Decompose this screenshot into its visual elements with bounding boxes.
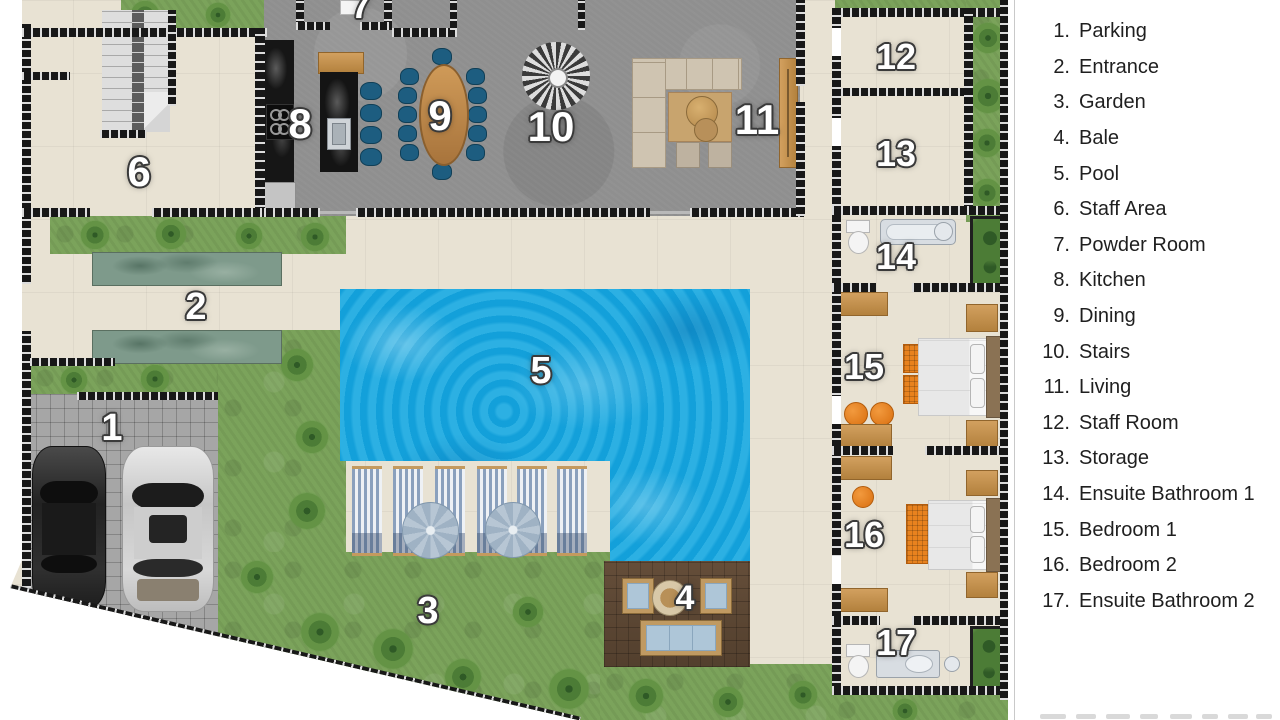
desk xyxy=(840,292,888,316)
sink xyxy=(934,222,953,241)
wall xyxy=(22,28,267,37)
legend-item-bedroom-2: 16.Bedroom 2 xyxy=(1032,548,1276,584)
garden-bottom-right xyxy=(832,692,1008,720)
legend-item-entrance: 2.Entrance xyxy=(1032,50,1276,86)
room-marker-kitchen: 8 xyxy=(288,103,311,145)
legend-item-staff-area: 6.Staff Area xyxy=(1032,192,1276,228)
room-marker-garden: 3 xyxy=(417,592,438,630)
legend-label: Entrance xyxy=(1079,56,1159,79)
wall xyxy=(22,331,31,588)
desk xyxy=(840,456,892,480)
bar-stool xyxy=(360,148,382,166)
orange-rug xyxy=(906,504,930,564)
legend: 1.Parking 2.Entrance 3.Garden 4.Bale 5.P… xyxy=(1032,14,1276,619)
pond xyxy=(92,252,282,286)
wall xyxy=(22,24,31,284)
plant xyxy=(60,366,88,394)
plant xyxy=(300,612,340,652)
desk xyxy=(840,588,888,612)
nightstand xyxy=(966,420,998,448)
legend-item-storage: 13.Storage xyxy=(1032,441,1276,477)
legend-item-dining: 9.Dining xyxy=(1032,299,1276,335)
ottoman xyxy=(708,142,732,168)
plant xyxy=(972,128,1002,158)
room-marker-bedroom-2: 16 xyxy=(844,517,884,553)
nightstand xyxy=(966,304,998,332)
legend-number: 13. xyxy=(1032,447,1070,470)
room-marker-powder-room: 7 xyxy=(351,0,371,24)
coffee-table-lower xyxy=(694,118,718,142)
wall xyxy=(832,283,876,292)
bale-chair xyxy=(700,578,732,614)
sun-lounger xyxy=(352,466,382,556)
dining-chair xyxy=(466,68,485,85)
console-detail xyxy=(787,69,789,157)
watermark xyxy=(1140,714,1158,719)
legend-number: 16. xyxy=(1032,554,1070,577)
pond xyxy=(92,330,282,364)
room-marker-bedroom-1: 15 xyxy=(844,349,884,385)
plant xyxy=(628,678,664,714)
stool xyxy=(870,402,894,426)
legend-item-staff-room: 12.Staff Room xyxy=(1032,406,1276,442)
room-marker-dining: 9 xyxy=(428,95,451,137)
dining-chair xyxy=(468,87,487,104)
door-opening xyxy=(832,28,841,56)
watermark xyxy=(1076,714,1096,719)
legend-number: 15. xyxy=(1032,519,1070,542)
room-marker-ensuite-2: 17 xyxy=(876,625,916,661)
door-opening xyxy=(832,118,841,146)
wall xyxy=(925,446,1008,455)
spiral-center xyxy=(548,68,568,88)
legend-label: Dining xyxy=(1079,305,1136,328)
pillow xyxy=(970,536,985,563)
legend-number: 1. xyxy=(1032,20,1070,43)
legend-label: Bale xyxy=(1079,127,1119,150)
car-roof xyxy=(42,503,96,555)
legend-item-ensuite-2: 17.Ensuite Bathroom 2 xyxy=(1032,584,1276,620)
wall xyxy=(22,72,70,80)
wall xyxy=(964,8,973,214)
legend-label: Bedroom 1 xyxy=(1079,519,1177,542)
legend-label: Staff Area xyxy=(1079,198,1166,221)
wall xyxy=(392,28,457,37)
bale-sofa xyxy=(640,620,722,656)
island-sink xyxy=(327,118,351,150)
desk xyxy=(840,424,892,448)
ottoman xyxy=(676,142,700,168)
legend-label: Ensuite Bathroom 1 xyxy=(1079,483,1255,506)
bale-chair xyxy=(622,578,654,614)
floor-plan: 1 2 3 4 5 6 7 8 9 10 11 12 13 14 15 16 1… xyxy=(0,0,1010,720)
car-windshield xyxy=(40,481,98,505)
legend-number: 5. xyxy=(1032,163,1070,186)
legend-item-pool: 5.Pool xyxy=(1032,156,1276,192)
legend-label: Kitchen xyxy=(1079,269,1146,292)
legend-label: Staff Room xyxy=(1079,412,1179,435)
watermark xyxy=(1106,714,1130,719)
room-marker-staff-area: 6 xyxy=(127,151,150,193)
plant xyxy=(712,686,744,718)
legend-item-kitchen: 8.Kitchen xyxy=(1032,263,1276,299)
room-marker-parking: 1 xyxy=(101,409,122,447)
wall xyxy=(690,208,804,217)
watermark xyxy=(1256,714,1272,719)
legend-item-powder-room: 7.Powder Room xyxy=(1032,228,1276,264)
dining-chair xyxy=(400,68,419,85)
legend-number: 10. xyxy=(1032,341,1070,364)
watermark xyxy=(1170,714,1192,719)
wall xyxy=(77,392,218,400)
bar-stool xyxy=(360,82,382,100)
dining-chair xyxy=(466,144,485,161)
plant xyxy=(140,364,170,394)
room-marker-ensuite-1: 14 xyxy=(876,239,916,275)
legend-label: Parking xyxy=(1079,20,1147,43)
umbrella xyxy=(402,502,459,559)
wall xyxy=(450,0,457,30)
legend-label: Powder Room xyxy=(1079,234,1206,257)
wall xyxy=(255,28,265,216)
legend-label: Storage xyxy=(1079,447,1149,470)
wall xyxy=(912,283,1008,292)
spiral-staircase xyxy=(522,42,590,110)
nightstand xyxy=(966,470,998,496)
toilet-bowl xyxy=(848,231,869,254)
plant xyxy=(205,2,231,28)
plant xyxy=(155,218,187,250)
plant xyxy=(240,560,274,594)
door-opening xyxy=(832,556,841,584)
wall xyxy=(152,208,264,217)
wall xyxy=(1000,0,1008,700)
wall xyxy=(796,0,805,86)
legend-number: 14. xyxy=(1032,483,1070,506)
door-opening xyxy=(832,396,841,424)
wall xyxy=(832,616,880,625)
plant xyxy=(288,492,326,530)
legend-item-bale: 4.Bale xyxy=(1032,121,1276,157)
car-silver xyxy=(122,446,214,612)
wall xyxy=(22,208,90,217)
wall xyxy=(832,446,893,455)
legend-item-garden: 3.Garden xyxy=(1032,85,1276,121)
room-marker-staff-room: 12 xyxy=(876,39,916,75)
kitchen-appliance xyxy=(264,182,296,210)
legend-number: 4. xyxy=(1032,127,1070,150)
stool xyxy=(852,486,874,508)
pillow xyxy=(970,344,985,374)
powder-room-floor xyxy=(0,0,80,22)
car-rear-window xyxy=(133,559,203,577)
car-rear-window xyxy=(41,555,97,573)
dining-chair xyxy=(432,48,452,65)
bale-chair-cushion xyxy=(627,583,649,609)
room-marker-storage: 13 xyxy=(876,136,916,172)
wall xyxy=(912,616,1008,625)
sun-lounger xyxy=(557,466,587,556)
legend-separator xyxy=(1014,0,1015,720)
legend-number: 2. xyxy=(1032,56,1070,79)
wall xyxy=(578,0,585,30)
wall xyxy=(796,102,805,216)
stool xyxy=(844,402,868,426)
wall xyxy=(832,8,1008,17)
legend-item-living: 11.Living xyxy=(1032,370,1276,406)
dining-chair xyxy=(398,87,417,104)
plant xyxy=(295,420,329,454)
legend-item-stairs: 10.Stairs xyxy=(1032,334,1276,370)
wall xyxy=(832,8,841,692)
plant xyxy=(548,668,590,710)
wall xyxy=(356,208,650,217)
dining-chair xyxy=(468,125,487,142)
legend-label: Pool xyxy=(1079,163,1119,186)
wall xyxy=(832,686,1008,695)
plant xyxy=(892,698,918,720)
legend-label: Ensuite Bathroom 2 xyxy=(1079,590,1255,613)
bar-stool xyxy=(360,126,382,144)
glass-door xyxy=(650,211,690,214)
room-marker-entrance: 2 xyxy=(185,288,206,326)
plant xyxy=(372,628,414,670)
legend-number: 17. xyxy=(1032,590,1070,613)
legend-number: 12. xyxy=(1032,412,1070,435)
plant xyxy=(235,222,263,250)
toilet-bowl xyxy=(848,655,869,678)
dining-chair xyxy=(398,125,417,142)
room-marker-living: 11 xyxy=(735,99,779,141)
legend-number: 3. xyxy=(1032,91,1070,114)
bale-chair-cushion xyxy=(705,583,727,609)
wall xyxy=(841,88,964,96)
floor-plan-page: 1 2 3 4 5 6 7 8 9 10 11 12 13 14 15 16 1… xyxy=(0,0,1280,720)
legend-number: 9. xyxy=(1032,305,1070,328)
wall xyxy=(296,22,330,30)
wall xyxy=(30,358,115,366)
car-windshield xyxy=(132,483,204,509)
nightstand xyxy=(966,572,998,598)
legend-number: 8. xyxy=(1032,269,1070,292)
car-sunroof xyxy=(149,515,187,543)
watermark xyxy=(1202,714,1218,719)
legend-number: 6. xyxy=(1032,198,1070,221)
plant xyxy=(788,680,818,710)
legend-item-parking: 1.Parking xyxy=(1032,14,1276,50)
dining-chair xyxy=(468,106,487,123)
legend-number: 7. xyxy=(1032,234,1070,257)
stair-landing xyxy=(144,92,170,132)
legend-label: Garden xyxy=(1079,91,1146,114)
sofa xyxy=(660,58,742,90)
bale-sofa-cushion xyxy=(646,625,716,651)
plant xyxy=(280,348,314,382)
legend-number: 11. xyxy=(1032,376,1070,399)
wall xyxy=(100,130,146,138)
legend-label: Stairs xyxy=(1079,341,1130,364)
sink-basin xyxy=(332,123,346,145)
legend-label: Living xyxy=(1079,376,1131,399)
glass-door xyxy=(320,211,356,214)
bar-stool xyxy=(360,104,382,122)
room-marker-bale: 4 xyxy=(676,581,695,615)
room-marker-pool: 5 xyxy=(530,352,551,390)
plant xyxy=(300,222,330,252)
pillow xyxy=(970,378,985,408)
wall xyxy=(168,10,176,106)
wall xyxy=(832,206,1008,215)
legend-label: Bedroom 2 xyxy=(1079,554,1177,577)
sink xyxy=(944,656,960,672)
room-marker-stairs: 10 xyxy=(528,106,575,148)
sofa-chaise xyxy=(632,58,666,168)
wall xyxy=(264,208,320,217)
kitchen-island-wood-top xyxy=(318,52,364,74)
car-black xyxy=(32,446,106,610)
pillow xyxy=(970,506,985,533)
car-trunk xyxy=(137,579,199,601)
watermark xyxy=(1228,714,1248,719)
dining-chair xyxy=(398,106,417,123)
legend-item-ensuite-1: 14.Ensuite Bathroom 1 xyxy=(1032,477,1276,513)
plant xyxy=(80,220,110,250)
umbrella xyxy=(485,502,541,558)
plant xyxy=(512,596,544,628)
dining-chair xyxy=(400,144,419,161)
watermark xyxy=(1040,714,1066,719)
plant xyxy=(972,178,1002,208)
legend-item-bedroom-1: 15.Bedroom 1 xyxy=(1032,512,1276,548)
